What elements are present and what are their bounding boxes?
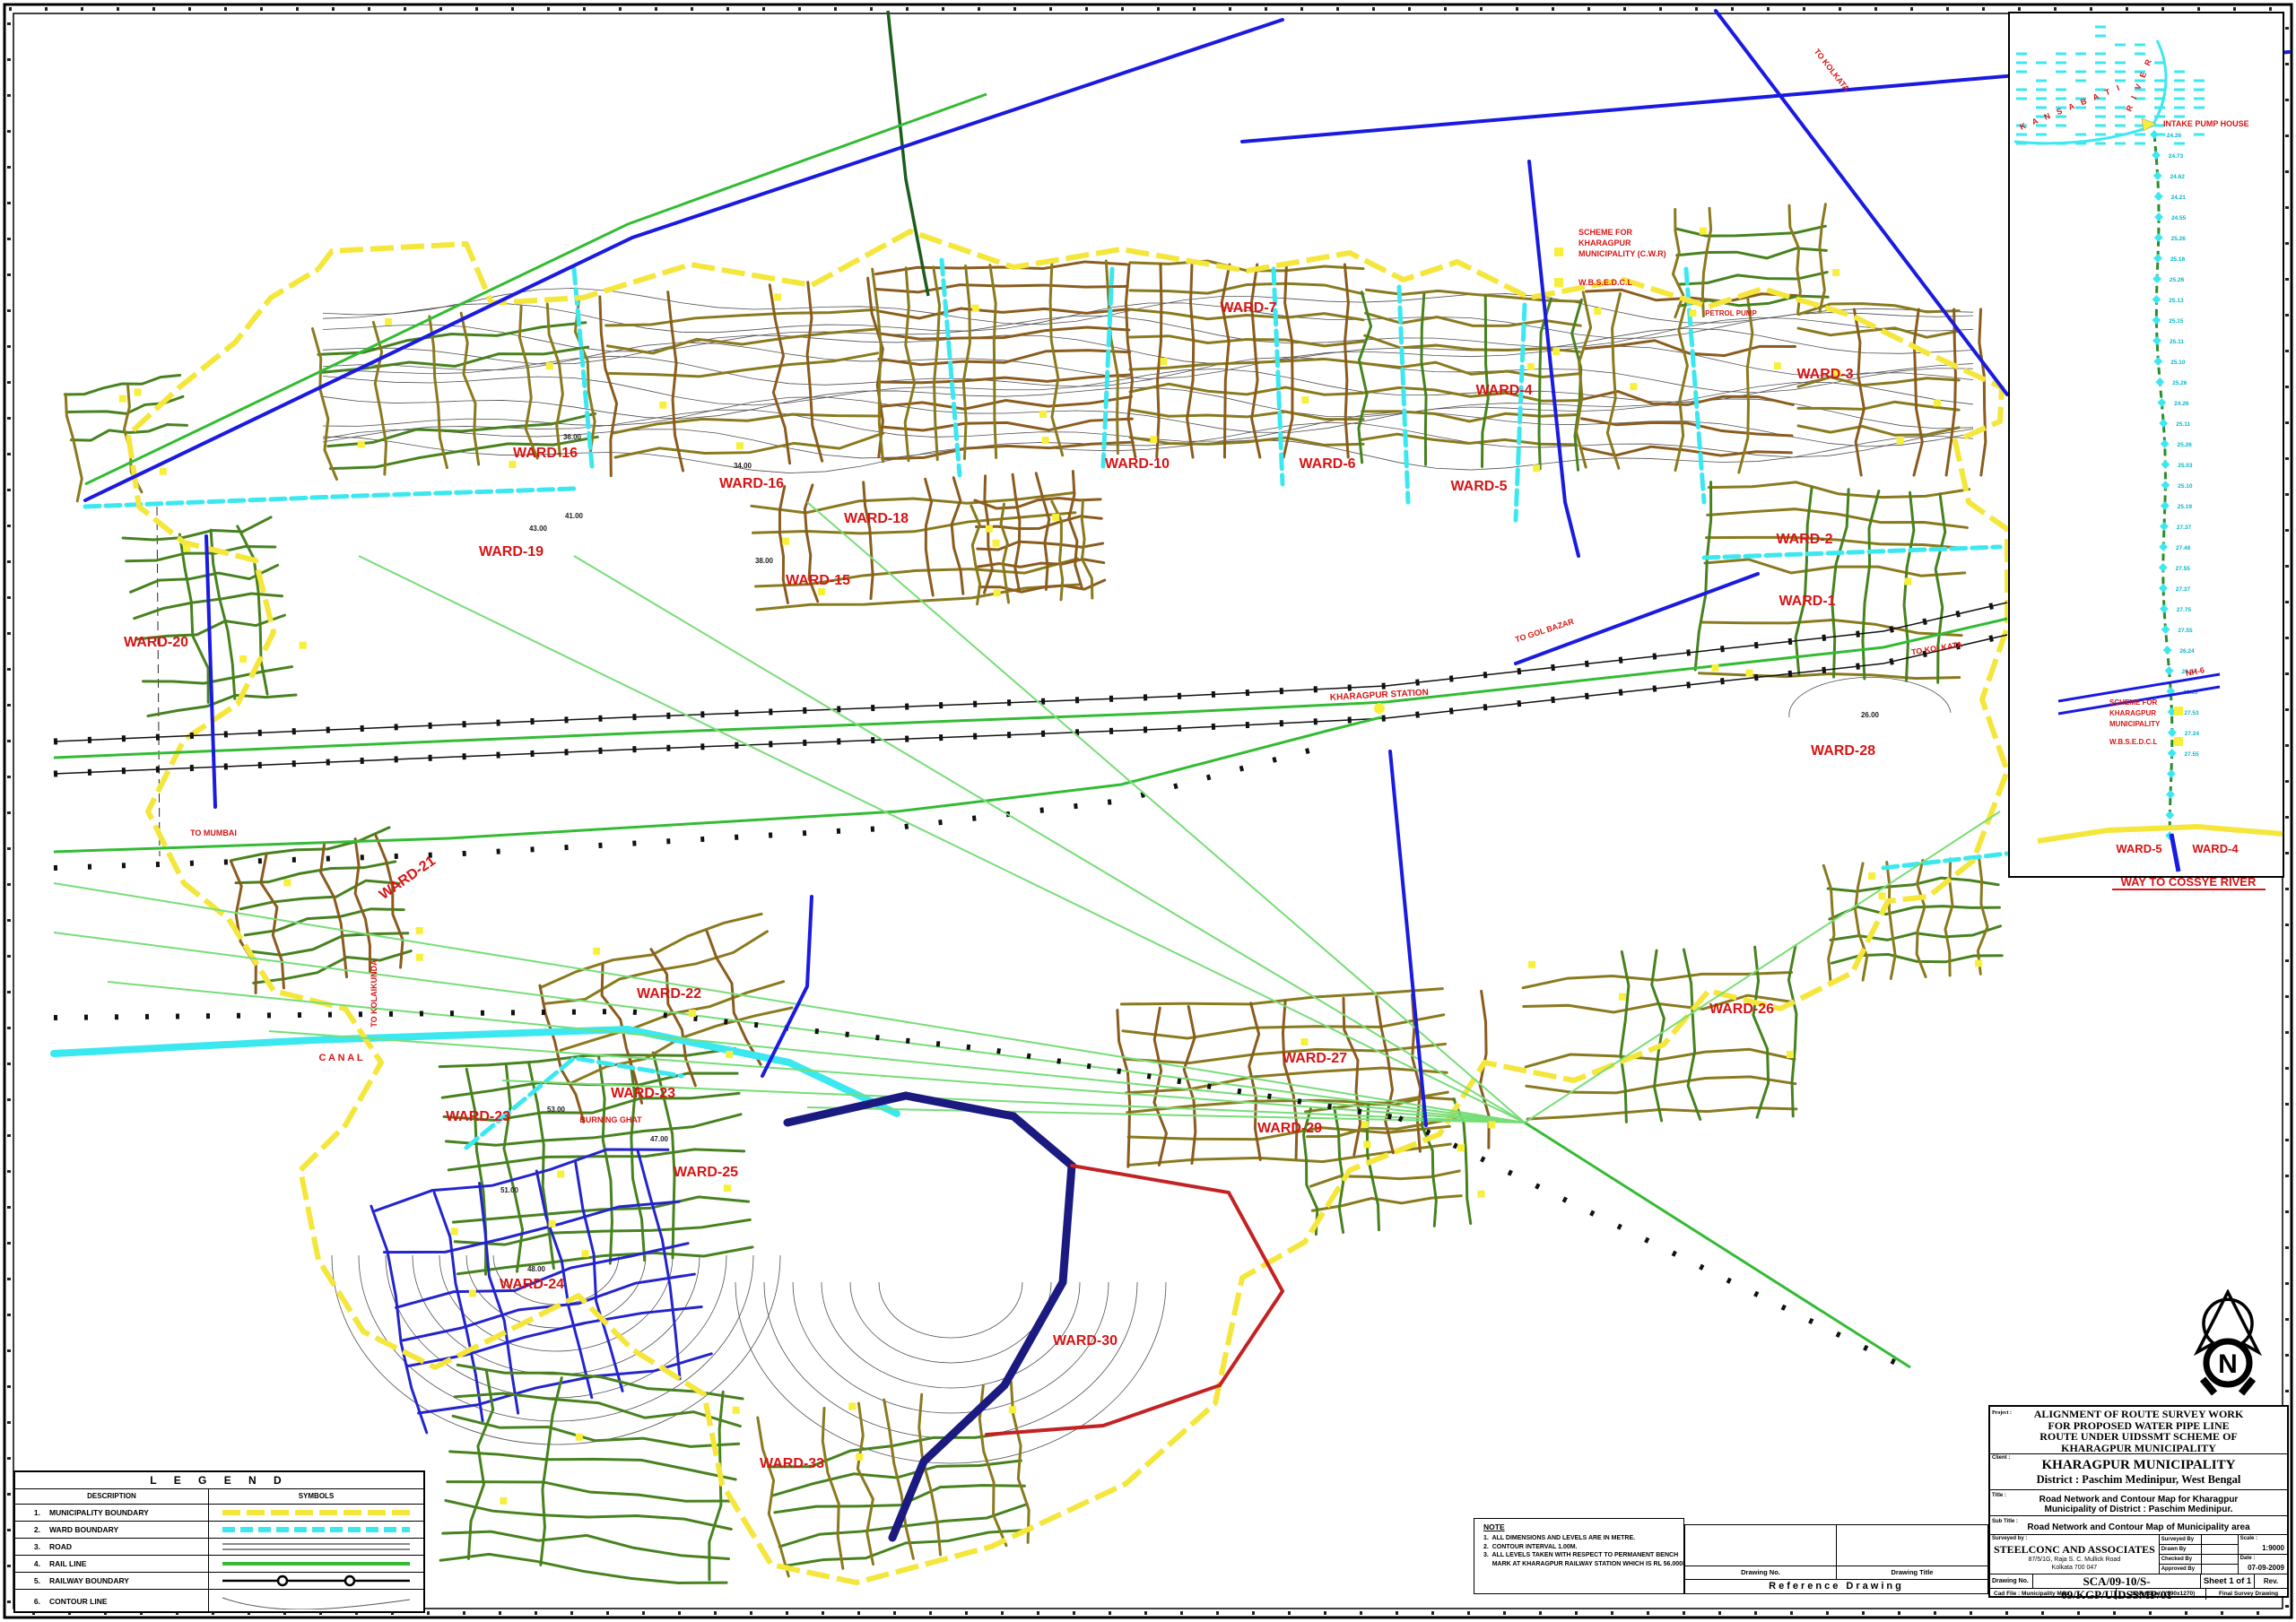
municipality-map: WARD-7WARD-4WARD-3WARD-6WARD-10WARD-5WAR… (0, 0, 2296, 1622)
place-label: KHARAGPUR STATION (1330, 688, 1430, 703)
pipeline-level-label: 27.48 (2176, 545, 2191, 551)
street-network (62, 204, 2003, 1587)
pipeline-level-label: 24.55 (2171, 215, 2187, 221)
signature-row-value (2202, 1535, 2238, 1544)
signature-row-value (2202, 1565, 2238, 1574)
pipeline-level-label: 25.18 (2170, 256, 2186, 263)
title-label: Title : (1992, 1491, 2006, 1501)
legend-row-label: RAIL LINE (49, 1559, 86, 1568)
pipeline-level-label: 25.03 (2178, 463, 2193, 469)
legend-row-number: 1. (15, 1508, 49, 1517)
pipeline-level-label: 27.37 (2176, 586, 2191, 593)
pipeline-level-label: 24.73 (2169, 153, 2184, 160)
pipeline-level-label: 25.26 (2170, 277, 2185, 283)
pipeline-level-label: 25.10 (2178, 483, 2193, 490)
date-value: 07-09-2009 (2248, 1564, 2284, 1572)
ward-label: WARD-1 (1779, 594, 1835, 609)
ward-label: WARD-16 (513, 446, 578, 461)
signature-table: Surveyed ByDrawn ByChecked ByApproved By (2159, 1535, 2238, 1574)
pipeline-level-label: 24.62 (2170, 174, 2186, 180)
ward-label: WARD-4 (1475, 383, 1532, 398)
ward-label: WARD-25 (674, 1165, 738, 1180)
project-label: Project : (1992, 1408, 2012, 1419)
inset-scheme-label: KHARAGPUR (2109, 709, 2156, 717)
surveyor-address1: 87/5/1G, Raja S. C. Mullick Road (1990, 1557, 2159, 1565)
legend-row-label: MUNICIPALITY BOUNDARY (49, 1508, 149, 1517)
ward-label: WARD-20 (124, 635, 188, 650)
pipeline-level-label: 25.26 (2178, 442, 2193, 448)
cad-file: Cad File : Municipality Map (1990, 1589, 2116, 1600)
contour-elevation-label: 47.00 (650, 1135, 669, 1143)
legend-row: 4.RAIL LINE (15, 1556, 423, 1573)
place-label: W.B.S.E.D.C.L (1578, 278, 1633, 287)
legend-row-number: 5. (15, 1576, 49, 1585)
ward-label: WARD-19 (479, 544, 544, 559)
inset-panel: 24.2624.7324.6224.2124.5525.2625.1825.26… (2009, 13, 2283, 889)
pipeline-level-label: 25.15 (2169, 318, 2184, 325)
inset-ward-label: WARD-4 (2192, 842, 2239, 855)
note-box: NOTE 1. ALL DIMENSIONS AND LEVELS ARE IN… (1474, 1518, 1684, 1594)
inset-scheme-label: MUNICIPALITY (2109, 720, 2161, 728)
reference-col-drawing-title: Drawing Title (1836, 1566, 1987, 1579)
contour-elevation-label: 53.00 (547, 1106, 566, 1114)
legend: L E G E N D DESCRIPTION SYMBOLS 1.MUNICI… (13, 1470, 425, 1613)
way-to-cossye-river-label: WAY TO COSSYE RIVER (2121, 875, 2257, 889)
legend-row-number: 6. (15, 1597, 49, 1606)
signature-row-value (2202, 1555, 2238, 1564)
ward-label: WARD-26 (1709, 1002, 1774, 1017)
ward-label: WARD-3 (1796, 367, 1853, 382)
pipeline-level-label: 26.24 (2179, 648, 2195, 655)
title-block: Project : ALIGNMENT OF ROUTE SURVEY WORK… (1988, 1405, 2289, 1598)
ward-label: WARD-22 (637, 986, 701, 1002)
pipeline-level-label: 24.21 (2171, 195, 2187, 201)
pipeline-level-label: 27.55 (2178, 628, 2193, 634)
place-label: C A N A L (318, 1053, 362, 1063)
legend-row: 1.MUNICIPALITY BOUNDARY (15, 1505, 423, 1522)
sheet-size: Sheet Size : (990x1270) (2116, 1589, 2205, 1600)
pipeline-level-label: 27.37 (2177, 525, 2192, 531)
ward-label: WARD-29 (1257, 1121, 1322, 1136)
ward-label: WARD-15 (786, 573, 850, 588)
pipeline-level-label: 25.13 (2169, 298, 2184, 304)
client-label: Client : (1992, 1455, 2010, 1461)
note-lines: 1. ALL DIMENSIONS AND LEVELS ARE IN METR… (1483, 1534, 1683, 1568)
signature-row-value (2202, 1545, 2238, 1554)
contour-symbol (215, 1594, 417, 1609)
legend-row-number: 2. (15, 1525, 49, 1534)
legend-row: 2.WARD BOUNDARY (15, 1522, 423, 1539)
pipeline-level-label: 25.11 (2176, 421, 2190, 428)
project-title-line: KHARAGPUR MUNICIPALITY (1990, 1443, 2287, 1454)
signature-row-label: Approved By (2160, 1565, 2202, 1574)
legend-col-description: DESCRIPTION (15, 1489, 208, 1504)
signature-row-label: Drawn By (2160, 1545, 2202, 1554)
ward-label: WARD-6 (1299, 456, 1355, 472)
ward-label: WARD-5 (1450, 479, 1507, 494)
ward-symbol (215, 1522, 417, 1538)
pipeline-level-label: 27.53 (2184, 710, 2199, 716)
place-label: KHARAGPUR (1578, 239, 1631, 247)
ward-label: WARD-2 (1776, 532, 1832, 547)
rail-symbol (215, 1557, 417, 1572)
signature-row-label: Surveyed By (2160, 1535, 2202, 1544)
contour-elevation-label: 34.00 (734, 462, 752, 470)
ward-label: WARD-23 (446, 1109, 510, 1124)
pipeline-level-label: 24.26 (2167, 133, 2182, 139)
drawing-no-value: SCA/09-10/S-09/KGP/UIDSSMP/01 (2033, 1574, 2201, 1588)
ward-label: WARD-23 (611, 1086, 675, 1101)
ring-road (787, 1096, 1072, 1538)
ward-label: WARD-30 (1053, 1333, 1118, 1349)
ward-label: WARD-10 (1105, 456, 1170, 472)
inset-scheme-label: SCHEME FOR (2109, 698, 2158, 707)
ward-label: WARD-28 (1811, 743, 1875, 759)
inset-ward-label: WARD-5 (2116, 842, 2161, 855)
pipeline-level-label: 27.24 (2185, 731, 2200, 737)
road-symbol (215, 1540, 417, 1555)
major-roads (85, 11, 2289, 1538)
rail-lines (54, 11, 2007, 1370)
surveyed-by-label: Surveyed by : (1992, 1536, 2027, 1541)
place-label: SCHEME FOR (1578, 228, 1633, 237)
reference-drawing-block: Drawing No. Drawing Title Reference Draw… (1684, 1524, 1988, 1594)
pipeline-level-label: 24.26 (2174, 401, 2189, 407)
legend-col-symbols: SYMBOLS (208, 1489, 423, 1504)
drawing-sheet: WARD-7WARD-4WARD-3WARD-6WARD-10WARD-5WAR… (0, 0, 2296, 1622)
signature-row-label: Checked By (2160, 1555, 2202, 1564)
pipeline-level-label: 27.75 (2177, 607, 2192, 613)
contour-elevation-label: 41.00 (565, 512, 584, 520)
legend-row-number: 3. (15, 1542, 49, 1551)
client-district: District : Paschim Medinipur, West Benga… (1990, 1473, 2287, 1486)
drawing-title-line2: Municipality of District : Paschim Medin… (1990, 1505, 2287, 1514)
north-arrow-letter: N (2218, 1349, 2238, 1379)
north-arrow: N (2190, 1289, 2266, 1397)
inset-wbsedcl-label: W.B.S.E.D.C.L (2109, 738, 2157, 746)
revision-label: Rev. (2255, 1574, 2287, 1588)
legend-row-number: 4. (15, 1559, 49, 1568)
place-label: PETROL PUMP (1705, 309, 1757, 317)
contour-elevation-label: 51.00 (500, 1186, 519, 1194)
ward-label: WARD-24 (500, 1277, 564, 1292)
drawing-subtitle: Road Network and Contour Map of Municipa… (1990, 1523, 2287, 1532)
legend-row-label: CONTOUR LINE (49, 1597, 108, 1606)
pipeline-level-label: 25.10 (2170, 360, 2186, 366)
note-line: MARK AT KHARAGPUR RAILWAY STATION WHICH … (1483, 1560, 1683, 1569)
legend-title: L E G E N D (15, 1472, 423, 1489)
note-line: 2. CONTOUR INTERVAL 1.00M. (1483, 1543, 1683, 1552)
reference-col-drawing-no: Drawing No. (1685, 1566, 1836, 1579)
place-label: TO GOL BAZAR (1514, 617, 1575, 645)
pipeline-level-label: 25.26 (2171, 236, 2187, 242)
contour-elevation-label: 48.00 (527, 1265, 546, 1273)
contour-elevation-label: 38.00 (755, 557, 774, 565)
pipeline-level-label: 27.55 (2185, 751, 2200, 758)
contour-elevation-label: 26.00 (1861, 711, 1880, 719)
surveyor-address2: Kolkata 700 047 (1990, 1565, 2159, 1573)
contour-elevation-label: 36.00 (563, 433, 582, 441)
pipeline-level-label: 27.55 (2176, 566, 2191, 572)
ward-label: WARD-33 (760, 1456, 824, 1471)
note-line: 1. ALL DIMENSIONS AND LEVELS ARE IN METR… (1483, 1534, 1683, 1543)
ward-label: WARD-18 (844, 511, 909, 526)
scale-value: 1:9000 (2262, 1544, 2284, 1552)
date-label: Date : (2240, 1556, 2256, 1561)
legend-row-label: WARD BOUNDARY (49, 1525, 118, 1534)
reference-caption: Reference Drawing (1685, 1579, 1987, 1593)
legend-row-label: ROAD (49, 1542, 72, 1551)
client-name: KHARAGPUR MUNICIPALITY (1990, 1454, 2287, 1473)
note-line: 3. ALL LEVELS TAKEN WITH RESPECT TO PERM… (1483, 1551, 1683, 1560)
canal (54, 1029, 897, 1114)
legend-row-label: RAILWAY BOUNDARY (49, 1576, 129, 1585)
railway-boundary-symbol (215, 1574, 417, 1589)
ward-label: WARD-7 (1220, 300, 1276, 316)
ward-label: WARD-27 (1283, 1051, 1347, 1066)
legend-row: 5.RAILWAY BOUNDARY (15, 1573, 423, 1590)
place-label: BURNING GHAT (579, 1115, 642, 1124)
intake-pump-house-label: INTAKE PUMP HOUSE (2163, 119, 2249, 128)
pipeline-level-label: 25.19 (2178, 504, 2193, 510)
ward-label: WARD-16 (719, 476, 784, 491)
project-title: ALIGNMENT OF ROUTE SURVEY WORKFOR PROPOS… (1990, 1409, 2287, 1454)
note-title: NOTE (1483, 1522, 1683, 1531)
place-label: TO MUMBAI (190, 828, 237, 837)
subtitle-label: Sub Title : (1992, 1517, 2018, 1526)
pipeline-level-label: 25.11 (2170, 339, 2184, 345)
legend-row: 3.ROAD (15, 1539, 423, 1556)
contour-elevation-label: 43.00 (529, 525, 548, 533)
legend-row: 6.CONTOUR LINE (15, 1590, 423, 1613)
scale-label: Scale : (2240, 1536, 2257, 1541)
pipeline-level-label: 25.26 (2172, 380, 2187, 386)
place-label: TO KOLAIKUNDA (370, 959, 378, 1028)
project-title-line: ALIGNMENT OF ROUTE SURVEY WORK (1990, 1409, 2287, 1420)
municipality-symbol (215, 1505, 417, 1521)
place-label: MUNICIPALITY (C.W.R) (1578, 249, 1666, 258)
drawing-type: Final Survey Drawing (2205, 1589, 2287, 1600)
place-label: TO KOLKATA (1813, 47, 1852, 93)
legend-rows: 1.MUNICIPALITY BOUNDARY2.WARD BOUNDARY3.… (15, 1505, 423, 1613)
drawing-title-line1: Road Network and Contour Map for Kharagp… (1990, 1495, 2287, 1505)
drawing-no-label: Drawing No. (1990, 1574, 2033, 1588)
sheet-number: Sheet 1 of 1 (2201, 1574, 2255, 1588)
